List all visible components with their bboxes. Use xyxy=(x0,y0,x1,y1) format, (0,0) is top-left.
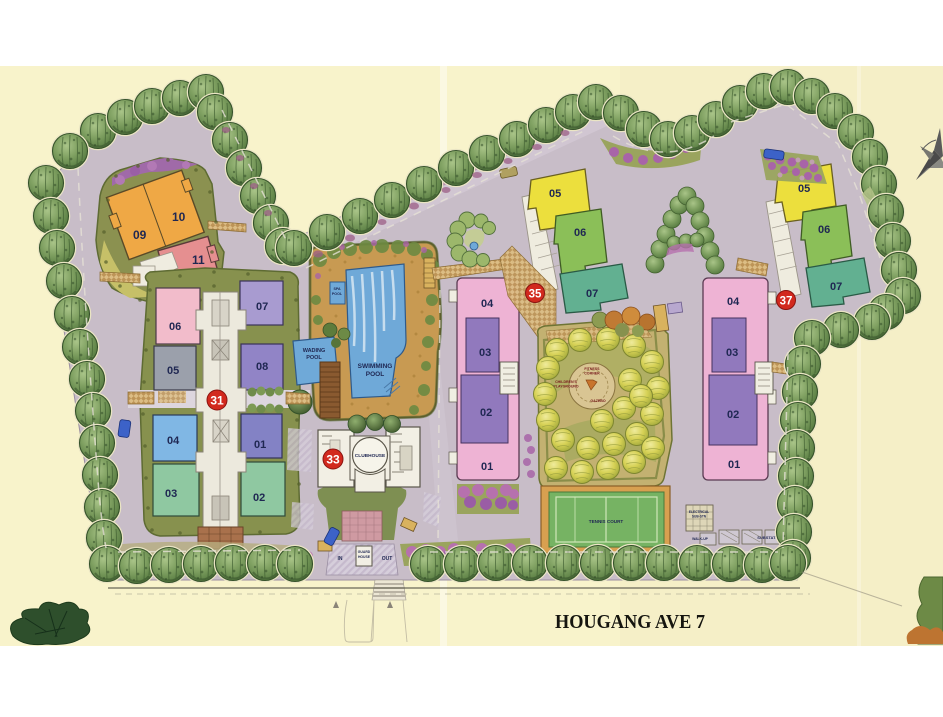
svg-text:11: 11 xyxy=(192,253,205,267)
svg-text:02: 02 xyxy=(253,492,265,504)
svg-text:POOL: POOL xyxy=(306,355,322,361)
svg-text:GUARD: GUARD xyxy=(358,550,371,554)
svg-text:05: 05 xyxy=(167,365,179,377)
svg-text:GAZEBO: GAZEBO xyxy=(590,399,606,403)
svg-text:ELECTRICAL: ELECTRICAL xyxy=(689,510,709,514)
svg-text:04: 04 xyxy=(727,296,740,308)
svg-text:FITNESS: FITNESS xyxy=(584,367,600,371)
svg-text:07: 07 xyxy=(586,288,598,300)
svg-text:06: 06 xyxy=(169,321,181,333)
svg-text:OUT: OUT xyxy=(382,556,393,562)
svg-text:POOL: POOL xyxy=(332,292,343,296)
svg-text:04: 04 xyxy=(481,298,494,310)
svg-text:03: 03 xyxy=(726,347,738,359)
svg-text:03: 03 xyxy=(479,347,491,359)
svg-text:IN: IN xyxy=(338,556,343,562)
svg-text:05: 05 xyxy=(798,183,810,195)
svg-text:07: 07 xyxy=(830,281,842,293)
svg-text:07: 07 xyxy=(256,301,268,313)
svg-text:CHILDREN'S: CHILDREN'S xyxy=(555,380,577,384)
svg-text:35: 35 xyxy=(529,289,542,301)
svg-text:09: 09 xyxy=(133,228,147,242)
svg-text:01: 01 xyxy=(481,461,493,473)
svg-text:31: 31 xyxy=(210,394,224,408)
svg-text:03: 03 xyxy=(165,488,177,500)
svg-text:CORNER: CORNER xyxy=(584,372,600,376)
svg-text:10: 10 xyxy=(172,210,186,224)
svg-text:SPA: SPA xyxy=(333,287,341,291)
svg-text:05: 05 xyxy=(549,188,561,200)
svg-text:POOL: POOL xyxy=(366,371,384,378)
svg-text:02: 02 xyxy=(727,409,739,421)
svg-text:TENNIS COURT: TENNIS COURT xyxy=(589,519,624,524)
svg-text:06: 06 xyxy=(574,227,586,239)
svg-text:02: 02 xyxy=(480,407,492,419)
svg-text:SWIMMING: SWIMMING xyxy=(358,363,393,370)
svg-text:06: 06 xyxy=(818,224,830,236)
svg-text:WALK-UP: WALK-UP xyxy=(692,537,709,541)
svg-text:CLUBHOUSE: CLUBHOUSE xyxy=(355,453,386,459)
svg-text:04: 04 xyxy=(167,435,180,447)
svg-text:01: 01 xyxy=(254,439,266,451)
svg-text:33: 33 xyxy=(326,453,340,467)
svg-text:WADING: WADING xyxy=(303,348,326,354)
svg-text:01: 01 xyxy=(728,459,740,471)
svg-text:HOUSE: HOUSE xyxy=(358,555,371,559)
svg-text:HOUGANG AVE 7: HOUGANG AVE 7 xyxy=(555,611,705,633)
svg-text:37: 37 xyxy=(780,296,793,308)
svg-text:SUB-STN: SUB-STN xyxy=(692,515,707,519)
svg-text:08: 08 xyxy=(256,361,268,373)
svg-text:PLAYGROUND: PLAYGROUND xyxy=(553,385,579,389)
